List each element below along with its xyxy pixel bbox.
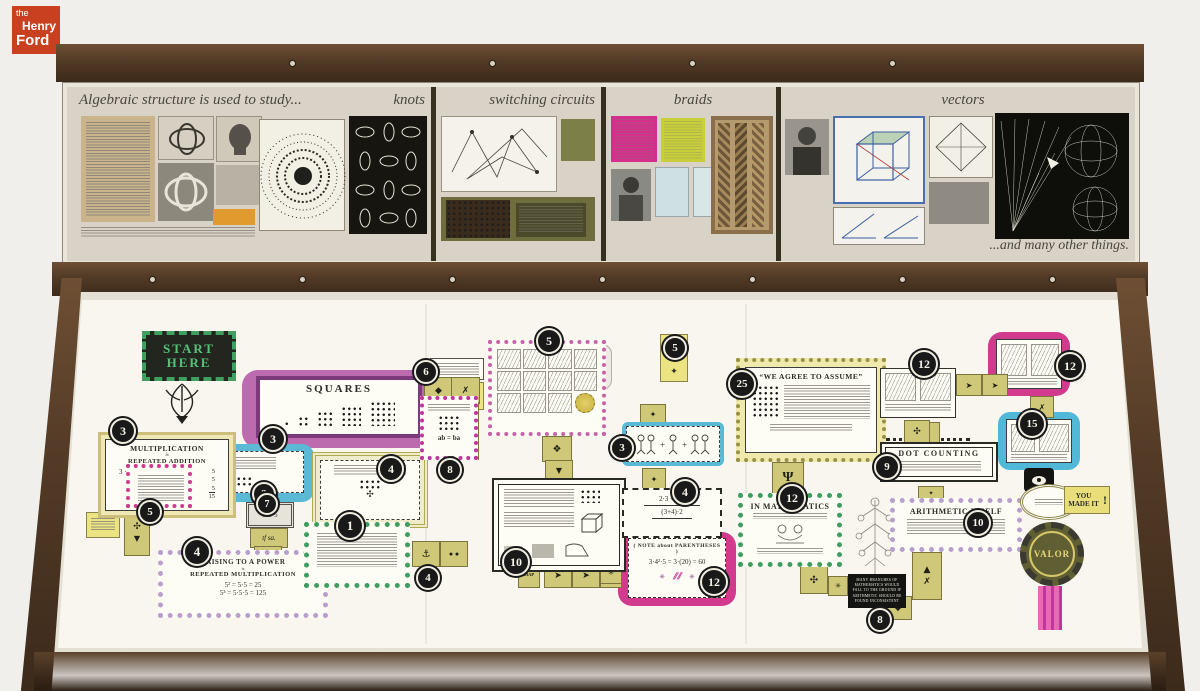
old-print-page bbox=[81, 116, 155, 222]
path-segment: ▲ ✗ bbox=[912, 552, 942, 600]
counting-box: ✣ bbox=[312, 452, 428, 528]
station-12-badge: 12 bbox=[778, 484, 806, 512]
museum-display-case-photo: the Henry Ford Algebraic structure is us… bbox=[0, 0, 1200, 691]
mult-addend: 5 bbox=[212, 468, 215, 475]
screw-icon bbox=[600, 277, 605, 282]
consistency-note-box: MANY BRANCHES OF MATHEMATICS WOULD FALL … bbox=[848, 574, 906, 608]
star-icon: ✳ bbox=[835, 582, 841, 590]
screw-icon bbox=[300, 277, 305, 282]
commutative-box: ab = ba bbox=[420, 396, 478, 460]
tfsa-tag: tf sa. bbox=[250, 528, 288, 548]
clover-icon: ✣ bbox=[133, 522, 141, 532]
magenta-fabric-swatch bbox=[611, 116, 657, 162]
cube-diagram-card bbox=[833, 116, 925, 204]
screw-icon bbox=[150, 277, 155, 282]
screw-icon bbox=[290, 61, 295, 66]
path-segment: ⚓ bbox=[412, 541, 440, 567]
path-segment: ❖ bbox=[542, 436, 572, 462]
star-icon: ✳ bbox=[689, 573, 695, 581]
consistency-note-text: MANY BRANCHES OF MATHEMATICS WOULD FALL … bbox=[850, 578, 904, 605]
station-3-badge: 3 bbox=[610, 436, 634, 460]
down-arrow-icon: ▼ bbox=[134, 534, 140, 543]
tfsa-label: tf sa. bbox=[262, 534, 276, 542]
bird-icon: ➤ bbox=[554, 571, 562, 581]
station-9-badge: 9 bbox=[874, 454, 900, 480]
green-card bbox=[561, 119, 595, 161]
station-25-badge: 25 bbox=[728, 370, 756, 398]
case-bottom-rail bbox=[34, 652, 1166, 691]
screw-icon bbox=[490, 61, 495, 66]
parens-title: ( NOTE about PARENTHESES ) bbox=[633, 543, 721, 555]
station-10-badge: 10 bbox=[502, 548, 530, 576]
parens-eq: 3·4²·5 = 3·(20) = 60 bbox=[633, 558, 721, 566]
station-8-badge: 8 bbox=[438, 458, 462, 482]
station-1-badge: 1 bbox=[336, 512, 364, 540]
power-eq1: 5² = 5·5 = 25 bbox=[169, 581, 317, 589]
arithmetic-itself-box: ARITHMETIC ITSELF bbox=[890, 498, 1022, 552]
panel-outro-text: ...and many other things. bbox=[933, 235, 1129, 257]
path-segment: ✣ bbox=[904, 420, 930, 444]
screw-icon bbox=[450, 277, 455, 282]
case-middle-rail bbox=[52, 262, 1148, 296]
path-segment: ▼ bbox=[545, 460, 573, 480]
knot-photo bbox=[158, 163, 214, 221]
station-3-badge: 3 bbox=[110, 418, 136, 444]
path-segment: ✦ bbox=[640, 404, 666, 424]
bird-icon: ➤ bbox=[582, 571, 590, 581]
valor-medal: VALOR bbox=[1020, 522, 1084, 586]
board-seam bbox=[745, 304, 747, 644]
path-segment: ➤ bbox=[982, 374, 1008, 396]
assoc-eq2: (3+4)·2 bbox=[629, 508, 715, 516]
cross-icon: ✗ bbox=[923, 577, 931, 587]
station-4-badge: 4 bbox=[183, 538, 211, 566]
knot-etching bbox=[158, 116, 214, 160]
station-12-badge: 12 bbox=[1056, 352, 1084, 380]
henry-ford-logo: the Henry Ford bbox=[12, 6, 60, 54]
flower-icon: ✦ bbox=[928, 490, 933, 497]
section-divider bbox=[431, 87, 436, 261]
power-eq2: 5³ = 5·5·5 = 125 bbox=[169, 589, 317, 597]
section-label-vectors: vectors bbox=[893, 89, 1033, 111]
mult-sum: 15 bbox=[209, 492, 216, 500]
panel-intro-text: Algebraic structure is used to study... bbox=[79, 89, 329, 111]
flower-icon: ✦ bbox=[651, 475, 658, 484]
power-subtitle: REPEATED MULTIPLICATION bbox=[169, 571, 317, 578]
cube-sketch-icon bbox=[580, 512, 606, 534]
path-segment: ➤ bbox=[956, 374, 982, 396]
screw-icon bbox=[690, 61, 695, 66]
flourish-arrow-icon bbox=[146, 382, 218, 424]
section-divider bbox=[601, 87, 606, 261]
cross-icon: ✗ bbox=[462, 386, 470, 396]
we-agree-box: “WE AGREE TO ASSUME” bbox=[736, 358, 886, 462]
upper-display-panel: Algebraic structure is used to study... … bbox=[62, 82, 1140, 266]
axes-diagram-card bbox=[833, 207, 925, 245]
squares-title: SQUARES bbox=[266, 383, 412, 395]
braid-samples-panel bbox=[711, 116, 773, 234]
bw-photo bbox=[929, 182, 989, 224]
logo-ford: Ford bbox=[16, 33, 56, 48]
people-sum-box: + + bbox=[622, 422, 724, 466]
assume-title: “WE AGREE TO ASSUME” bbox=[752, 372, 870, 381]
gold-seal-icon bbox=[575, 393, 595, 413]
anchor-icon: ⚓ bbox=[422, 549, 431, 560]
svg-text:+: + bbox=[660, 440, 665, 450]
section-divider bbox=[776, 87, 781, 261]
section-label-switching: switching circuits bbox=[455, 89, 595, 111]
radial-knot-diagram bbox=[259, 119, 345, 231]
valor-label: VALOR bbox=[1029, 531, 1075, 577]
knot-photo-small bbox=[216, 165, 262, 205]
path-segment: ✣ bbox=[800, 566, 828, 594]
station-5-badge: 5 bbox=[138, 500, 162, 524]
you-made-it-label: YOU MADE IT bbox=[1067, 492, 1100, 509]
clover-icon: ✣ bbox=[325, 490, 415, 500]
flower-icon: ✦ bbox=[670, 367, 678, 377]
logo-henry: Henry bbox=[16, 20, 56, 32]
blue-diagram-card bbox=[655, 167, 689, 217]
exclamation-mark: ! bbox=[1103, 493, 1107, 508]
bird-icon: ➤ bbox=[992, 381, 999, 390]
station-6-badge: 6 bbox=[414, 360, 438, 384]
station-5-badge: 5 bbox=[663, 336, 687, 360]
skull-etching bbox=[216, 116, 262, 162]
orange-label bbox=[213, 209, 255, 225]
station-12-badge: 12 bbox=[910, 350, 938, 378]
station-4-badge: 4 bbox=[416, 566, 440, 590]
you-made-it-tag: YOU MADE IT ! bbox=[1064, 486, 1110, 514]
mult-title: MULTIPLICATION bbox=[111, 444, 223, 453]
path-segment: ● ● bbox=[440, 541, 468, 567]
burst-icon: ❖ bbox=[553, 444, 562, 455]
square-1-dots bbox=[284, 421, 289, 426]
path-segment: ✦ bbox=[642, 468, 666, 490]
station-12-badge: 12 bbox=[700, 568, 728, 596]
section-label-knots: knots bbox=[353, 89, 425, 111]
arith-title: ARITHMETIC ITSELF bbox=[903, 507, 1009, 516]
clover-icon: ✣ bbox=[913, 427, 921, 437]
station-4-badge: 4 bbox=[378, 456, 404, 482]
logo-the: the bbox=[16, 9, 56, 18]
circuit-board bbox=[446, 200, 510, 238]
station-4-badge: 4 bbox=[672, 479, 698, 505]
square-16-dots bbox=[341, 406, 361, 426]
bird-icon: ➤ bbox=[966, 381, 973, 390]
stick-figures-sketch: + + bbox=[633, 431, 713, 457]
diamond-icon: ◆ bbox=[435, 386, 442, 396]
screw-icon bbox=[890, 61, 895, 66]
section-label-braids: braids bbox=[623, 89, 763, 111]
chartreuse-fabric-swatch bbox=[661, 118, 705, 162]
caption-strip bbox=[81, 227, 255, 237]
circuit-grid-card bbox=[515, 202, 587, 238]
svg-text:+: + bbox=[682, 440, 687, 450]
screw-icon bbox=[750, 277, 755, 282]
square-25-dots bbox=[370, 401, 395, 426]
flower-icon: ✦ bbox=[650, 410, 657, 419]
station-8-badge: 8 bbox=[868, 608, 892, 632]
commutative-eq: ab = ba bbox=[428, 434, 470, 442]
cartoon-grid-box bbox=[488, 340, 606, 436]
path-segment: ✳ bbox=[828, 576, 848, 596]
pink-step-box bbox=[126, 464, 192, 508]
dot-counting-title: DOT COUNTING bbox=[890, 449, 988, 458]
screw-icon bbox=[900, 277, 905, 282]
case-top-rail bbox=[56, 44, 1144, 82]
station-5-badge: 5 bbox=[536, 328, 562, 354]
down-arrow-icon: ▼ bbox=[556, 466, 562, 475]
magenta-marks: ⫽⫽ bbox=[673, 571, 681, 582]
start-here-stamp: START HERE bbox=[142, 331, 236, 381]
string-art-panel bbox=[995, 113, 1129, 239]
star-icon: ✳ bbox=[659, 573, 665, 581]
station-7-badge: 7 bbox=[256, 493, 278, 515]
circuit-graph-sketch bbox=[441, 116, 557, 192]
mult-addend: 5 bbox=[212, 485, 215, 492]
mult-addend: 5 bbox=[212, 476, 215, 483]
square-4-dots bbox=[298, 416, 308, 426]
cartoon-cells bbox=[497, 349, 597, 413]
station-15-badge: 15 bbox=[1018, 410, 1046, 438]
screw-icon bbox=[1050, 277, 1055, 282]
station-10-badge: 10 bbox=[965, 510, 991, 536]
cross-icon: ✗ bbox=[1039, 403, 1046, 412]
portrait-photo-vectors bbox=[785, 119, 829, 175]
gray-square bbox=[532, 544, 554, 558]
clover-icon: ✣ bbox=[810, 575, 818, 586]
start-here-label: START HERE bbox=[163, 342, 215, 371]
station-3-badge: 3 bbox=[260, 426, 286, 452]
up-arrow-icon: ▲ bbox=[924, 565, 931, 575]
geometric-diagram-card bbox=[929, 116, 993, 178]
portrait-photo bbox=[611, 169, 651, 221]
medal-ribbon bbox=[1038, 586, 1062, 630]
outline-shape bbox=[564, 540, 590, 558]
handshake-sketch bbox=[770, 521, 810, 547]
raising-power-box: RAISING TO A POWER is REPEATED MULTIPLIC… bbox=[158, 550, 328, 618]
square-9-dots bbox=[317, 411, 332, 426]
black-knot-panel bbox=[349, 116, 427, 234]
